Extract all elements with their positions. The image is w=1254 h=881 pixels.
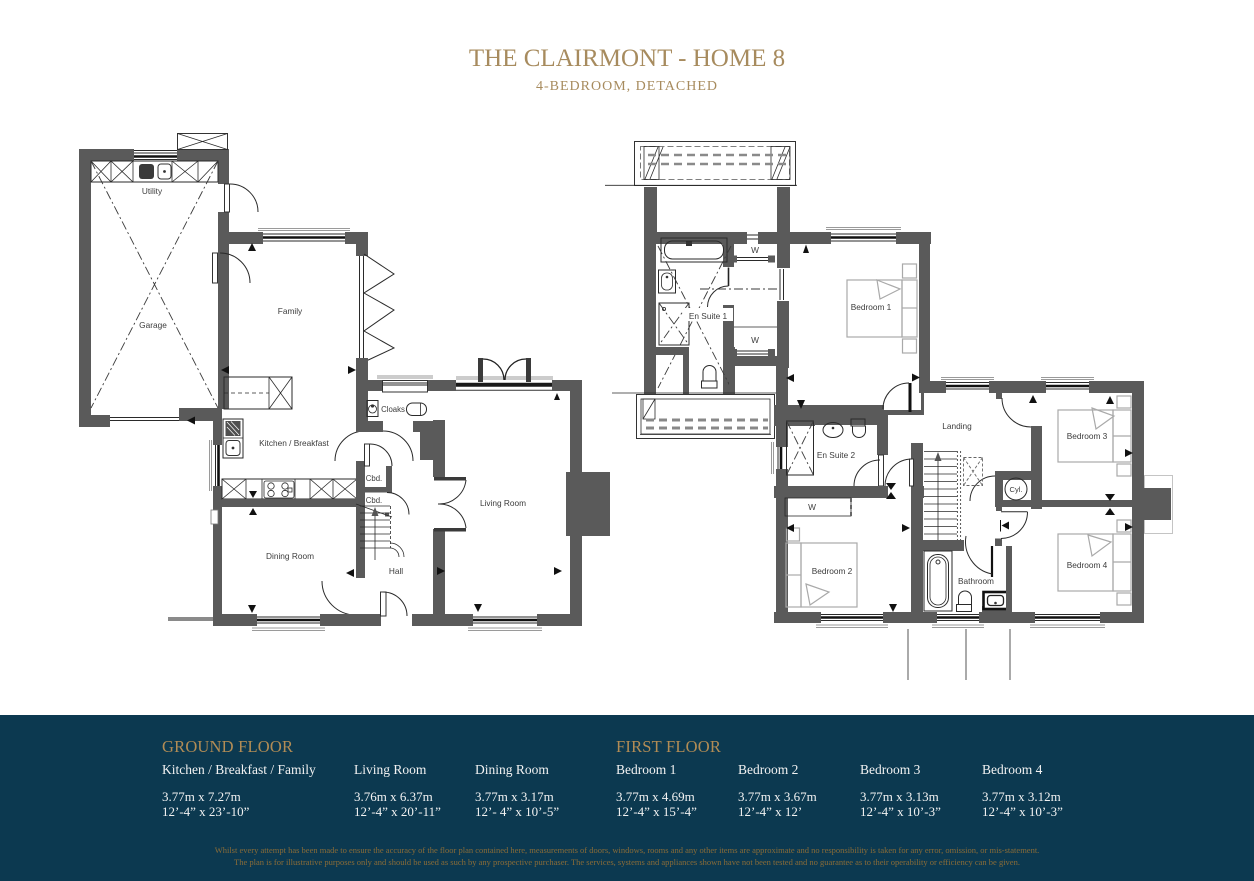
svg-text:W: W xyxy=(751,245,759,255)
svg-text:Kitchen / Breakfast: Kitchen / Breakfast xyxy=(259,438,329,448)
svg-text:Landing: Landing xyxy=(942,421,972,431)
svg-text:En Suite 2: En Suite 2 xyxy=(817,450,856,460)
svg-text:Cbd.: Cbd. xyxy=(366,474,382,483)
svg-text:Bedroom 1: Bedroom 1 xyxy=(851,302,892,312)
svg-text:Cloaks: Cloaks xyxy=(381,405,405,414)
svg-text:W: W xyxy=(808,502,816,512)
svg-text:W: W xyxy=(751,335,759,345)
svg-text:Hall: Hall xyxy=(389,566,403,576)
svg-text:Dining Room: Dining Room xyxy=(266,551,314,561)
svg-text:Bedroom 4: Bedroom 4 xyxy=(1067,560,1108,570)
svg-text:Living Room: Living Room xyxy=(480,498,526,508)
svg-text:Garage: Garage xyxy=(139,320,167,330)
svg-text:Cbd.: Cbd. xyxy=(366,496,382,505)
svg-text:Utility: Utility xyxy=(142,186,163,196)
svg-text:Bathroom: Bathroom xyxy=(958,576,994,586)
svg-text:En Suite 1: En Suite 1 xyxy=(689,311,728,321)
svg-text:Family: Family xyxy=(278,306,303,316)
svg-text:Bedroom 3: Bedroom 3 xyxy=(1067,431,1108,441)
svg-text:Bedroom 2: Bedroom 2 xyxy=(812,566,853,576)
svg-text:Cyl.: Cyl. xyxy=(1010,485,1023,494)
